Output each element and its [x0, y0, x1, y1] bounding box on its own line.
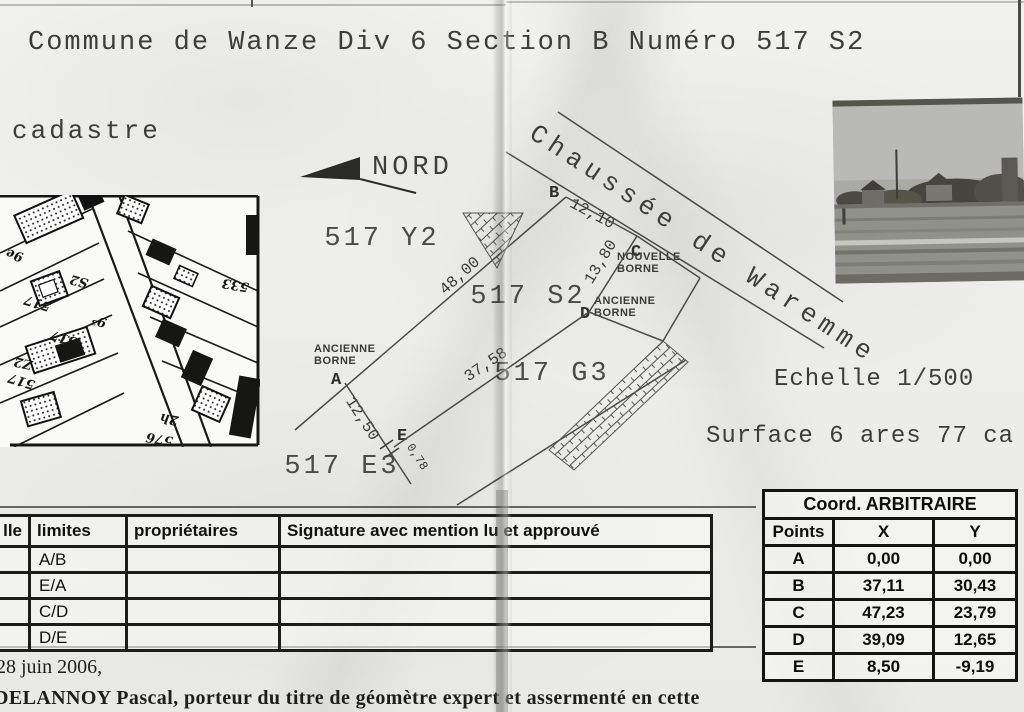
coord-table-header: Points: [764, 519, 834, 546]
horizontal-crease-mid: [0, 506, 756, 508]
empty-cell: [0, 547, 30, 573]
coord-point-cell: E: [764, 654, 834, 681]
signature-table-header: propriétaires: [127, 516, 280, 547]
coord-y-cell: 12,65: [934, 627, 1017, 654]
coord-x-cell: 8,50: [834, 654, 934, 681]
coord-point-cell: C: [764, 600, 834, 627]
coord-y-cell: 30,43: [934, 573, 1017, 600]
coord-point-cell: B: [764, 573, 834, 600]
coord-y-cell: -9,19: [934, 654, 1017, 681]
north-arrow-icon: [300, 157, 360, 180]
coord-y-cell: 0,00: [934, 546, 1017, 573]
signature-table-header: Signature avec mention lu et approuvé: [280, 516, 712, 547]
limit-segment-cell: D/E: [30, 625, 127, 651]
signature-table-row: E/A: [0, 573, 712, 599]
limit-segment-cell: A/B: [30, 547, 127, 573]
coord-point-cell: D: [764, 627, 834, 654]
signature-table-row: C/D: [0, 599, 712, 625]
signature-table-header: lle: [0, 516, 30, 547]
coord-table-row: A0,000,00: [764, 546, 1017, 573]
signature-table-row: A/B: [0, 547, 712, 573]
empty-cell: [280, 599, 712, 625]
empty-cell: [0, 599, 30, 625]
empty-cell: [127, 599, 280, 625]
empty-cell: [127, 547, 280, 573]
coord-table-row: D39,0912,65: [764, 627, 1017, 654]
empty-cell: [280, 573, 712, 599]
coord-table-title: Coord. ARBITRAIRE: [764, 491, 1017, 519]
limit-segment-cell: E/A: [30, 573, 127, 599]
coordinates-table: Coord. ARBITRAIRE PointsXY A0,000,00B37,…: [762, 489, 1018, 682]
coord-table-row: B37,1130,43: [764, 573, 1017, 600]
coord-x-cell: 39,09: [834, 627, 934, 654]
limit-segment-cell: C/D: [30, 599, 127, 625]
scanned-survey-document: Commune de Wanze Div 6 Section B Numéro …: [0, 0, 1024, 712]
coord-x-cell: 0,00: [834, 546, 934, 573]
empty-cell: [127, 573, 280, 599]
coord-table-header: X: [834, 519, 934, 546]
empty-cell: [0, 625, 30, 651]
empty-cell: [0, 573, 30, 599]
coord-x-cell: 37,11: [834, 573, 934, 600]
signature-table-row: D/E: [0, 625, 712, 651]
coord-table-header: Y: [934, 519, 1017, 546]
coord-x-cell: 47,23: [834, 600, 934, 627]
coord-y-cell: 23,79: [934, 600, 1017, 627]
coord-point-cell: A: [764, 546, 834, 573]
empty-cell: [280, 547, 712, 573]
empty-cell: [127, 625, 280, 651]
coord-table-row: C47,2323,79: [764, 600, 1017, 627]
coord-table-row: E8,50-9,19: [764, 654, 1017, 681]
signature-table: llelimitespropriétairesSignature avec me…: [0, 514, 713, 652]
empty-cell: [280, 625, 712, 651]
signature-table-header: limites: [30, 516, 127, 547]
